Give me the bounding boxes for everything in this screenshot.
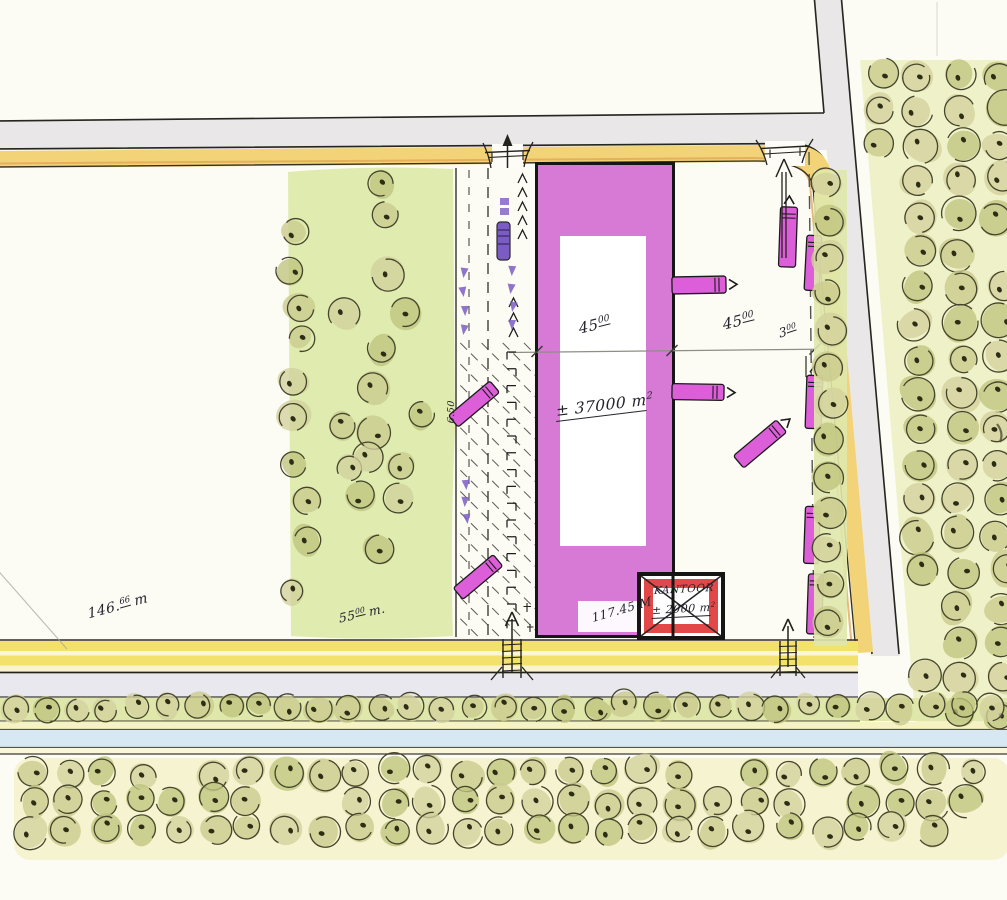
dimension-value: 6.50 <box>446 400 457 424</box>
plan-drawing <box>0 0 1007 900</box>
strip-mark <box>500 208 509 215</box>
verge-strip <box>0 722 1007 730</box>
kantoor-area-exponent: 2 <box>710 601 715 609</box>
dimension-decimals: 66 <box>119 595 131 609</box>
dimension-decimals: 00 <box>355 605 366 617</box>
dimension-decimals: 00 <box>785 320 796 333</box>
dimension-decimals: 00 <box>741 308 754 323</box>
bottom-road-band <box>0 651 858 656</box>
bottom-road-band <box>0 666 858 673</box>
bottom-gray-band <box>0 674 858 697</box>
parked-car <box>497 222 510 260</box>
dimension-label-strip-width: 6.50 <box>447 400 457 424</box>
kantoor-area-label: ± 2000 m2 <box>652 602 715 617</box>
canal-bank-strip <box>0 748 1007 754</box>
bottom-road-band <box>0 656 858 666</box>
area-exponent: 2 <box>647 390 653 402</box>
bottom-road-band <box>0 641 858 651</box>
canal <box>0 730 1007 747</box>
hand-drawn-site-plan: 4500 4500 300 ± 37000 m2 KANTOOR ± 2000 … <box>0 0 1007 900</box>
dimension-decimals: 00 <box>597 312 610 327</box>
kantoor-area-value: ± 2000 m <box>652 601 711 617</box>
strip-mark <box>500 198 509 205</box>
